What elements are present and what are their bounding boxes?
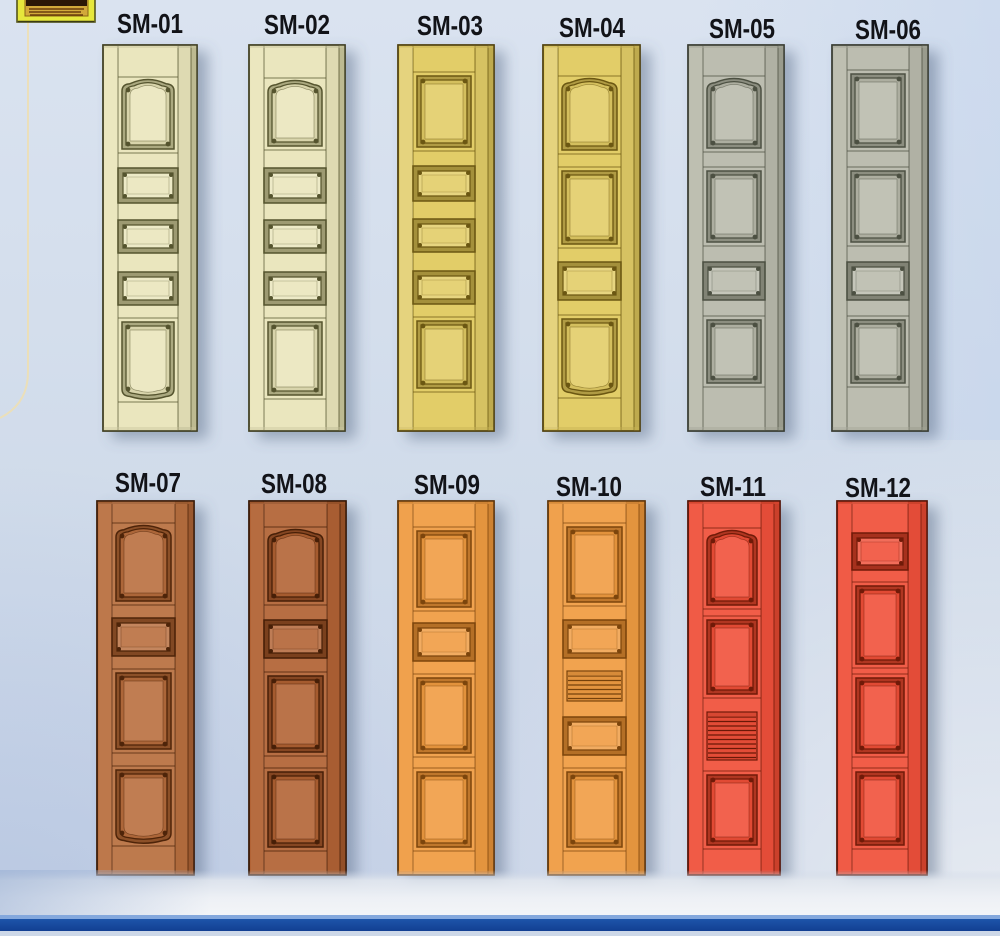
svg-text:SM-08: SM-08 xyxy=(261,468,327,499)
svg-text:SM-03: SM-03 xyxy=(417,10,483,41)
svg-text:SM-05: SM-05 xyxy=(709,13,775,44)
svg-text:SM-11: SM-11 xyxy=(700,471,766,502)
svg-text:SM-09: SM-09 xyxy=(414,469,480,500)
svg-text:SM-02: SM-02 xyxy=(264,9,330,40)
svg-text:SM-01: SM-01 xyxy=(117,8,183,39)
svg-text:SM-07: SM-07 xyxy=(115,467,181,498)
svg-text:SM-04: SM-04 xyxy=(559,12,625,43)
svg-text:SM-12: SM-12 xyxy=(845,472,911,503)
svg-text:SM-06: SM-06 xyxy=(855,14,921,45)
svg-text:SM-10: SM-10 xyxy=(556,471,622,502)
